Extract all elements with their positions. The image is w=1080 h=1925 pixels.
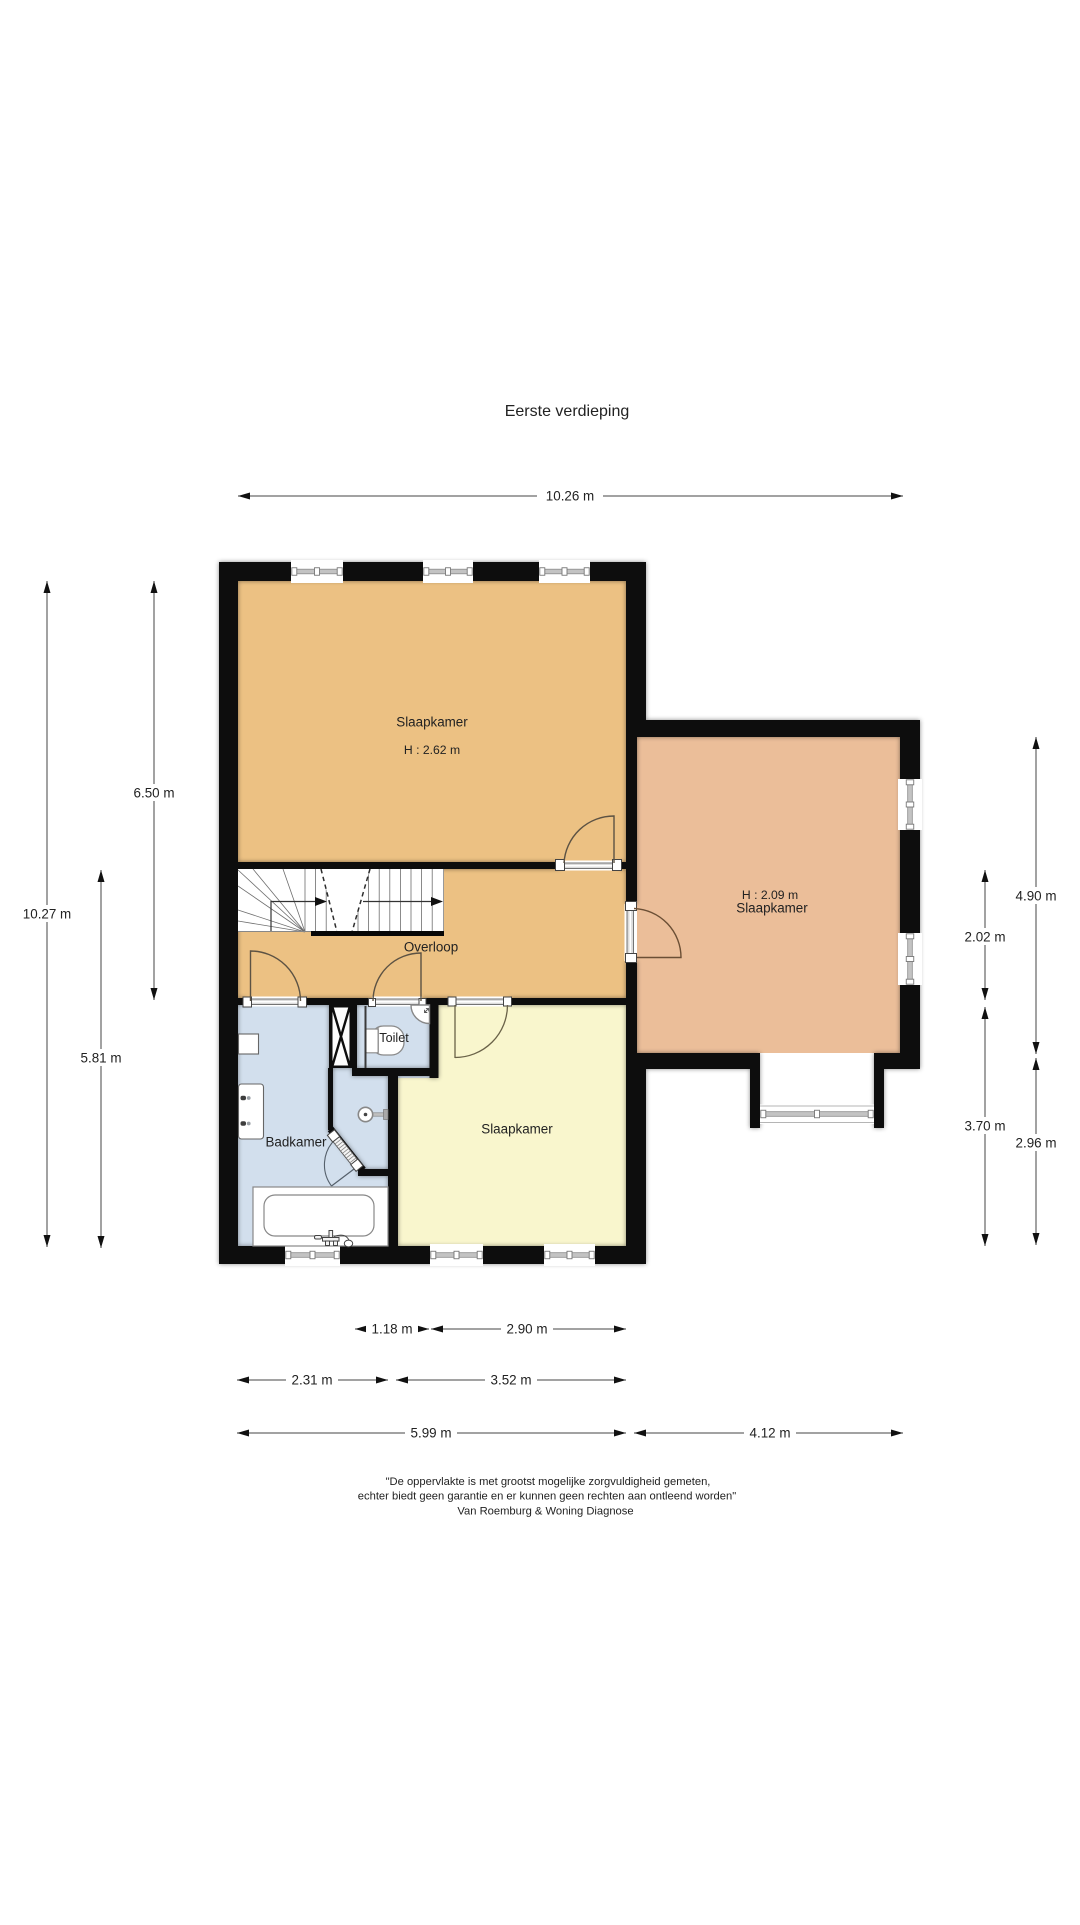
svg-text:"De oppervlakte is met grootst: "De oppervlakte is met grootst mogelijke…	[386, 1476, 711, 1488]
svg-text:Slaapkamer: Slaapkamer	[396, 715, 468, 730]
svg-text:10.27 m: 10.27 m	[23, 907, 71, 922]
svg-text:4.90 m: 4.90 m	[1016, 889, 1057, 904]
svg-text:Slaapkamer: Slaapkamer	[481, 1122, 553, 1137]
svg-text:Eerste verdieping: Eerste verdieping	[505, 403, 630, 420]
svg-text:10.26 m: 10.26 m	[546, 489, 594, 504]
svg-text:2.02 m: 2.02 m	[965, 930, 1006, 945]
svg-text:2.96 m: 2.96 m	[1016, 1136, 1057, 1151]
svg-text:5.99 m: 5.99 m	[411, 1426, 452, 1441]
svg-text:3.70 m: 3.70 m	[965, 1119, 1006, 1134]
svg-text:Toilet: Toilet	[379, 1031, 409, 1045]
svg-text:H : 2.62 m: H : 2.62 m	[404, 743, 460, 757]
svg-text:1.18 m: 1.18 m	[372, 1322, 413, 1337]
svg-text:6.50 m: 6.50 m	[134, 786, 175, 801]
svg-text:2.90 m: 2.90 m	[507, 1322, 548, 1337]
svg-text:Van Roemburg & Woning Diagnose: Van Roemburg & Woning Diagnose	[457, 1506, 633, 1518]
svg-text:Badkamer: Badkamer	[265, 1135, 327, 1150]
svg-text:5.81 m: 5.81 m	[81, 1051, 122, 1066]
svg-text:2.31 m: 2.31 m	[292, 1373, 333, 1388]
svg-text:4.12 m: 4.12 m	[750, 1426, 791, 1441]
svg-text:Overloop: Overloop	[404, 940, 458, 955]
svg-text:Slaapkamer: Slaapkamer	[736, 901, 808, 916]
svg-text:echter biedt geen garantie en: echter biedt geen garantie en er kunnen …	[358, 1491, 736, 1503]
svg-text:3.52 m: 3.52 m	[491, 1373, 532, 1388]
